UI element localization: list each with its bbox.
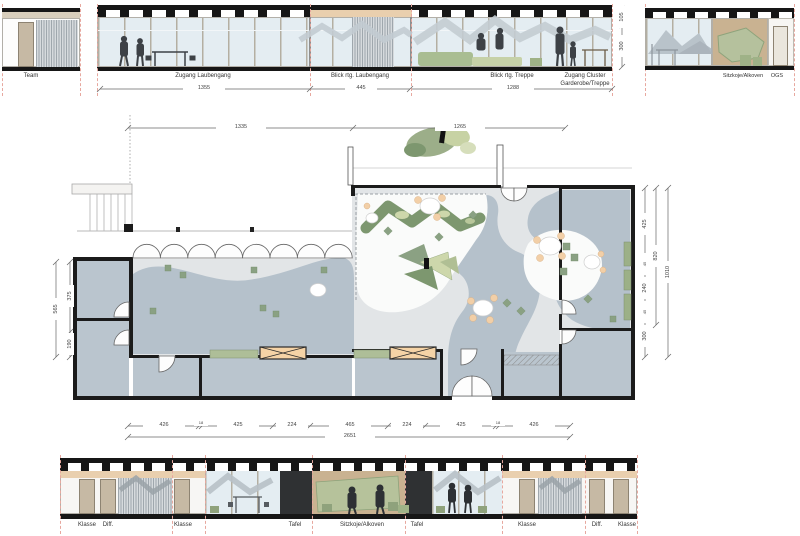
garderobe-benches	[210, 242, 631, 359]
dim-seg-426b: 426	[513, 422, 555, 429]
dim-seg-426a: 426	[143, 422, 185, 429]
dim-total-2651: 2651	[325, 433, 375, 440]
architectural-sheet: Team Zugang Laubengang Blick rtg. Lauben…	[0, 0, 800, 536]
section-label-ogs: OGS	[762, 73, 792, 80]
main-elevation-floor	[97, 67, 612, 71]
vdim-105: 105	[618, 6, 626, 28]
dim-375: 375	[66, 285, 74, 307]
bottom-label-diff-1: Diff.	[93, 522, 123, 529]
dim-1265: 1265	[435, 124, 485, 131]
dim-565: 565	[52, 298, 60, 320]
section-cut-line	[80, 4, 81, 96]
section-cut-line	[502, 455, 503, 534]
dim-820: 820	[652, 245, 660, 267]
diff-door	[100, 479, 116, 514]
green-triangle-cluster	[398, 244, 459, 290]
walls	[73, 185, 635, 400]
laubengang-post	[250, 227, 254, 232]
laubengang-ceiling	[310, 10, 412, 17]
section-label-zugang-laubengang: Zugang Laubengang	[153, 73, 253, 80]
bottom-glass-left	[205, 471, 280, 514]
bottom-label-sitzkoje: Sitzkoje/Alkoven	[322, 522, 402, 529]
section-label-blick-laubengang: Blick rtg. Laubengang	[310, 73, 410, 80]
bottom-tan-band-right	[502, 471, 637, 478]
team-door	[18, 22, 34, 67]
classrooms	[77, 261, 631, 396]
wall-return-post	[497, 145, 503, 187]
bottom-glass-right	[432, 471, 502, 514]
tafel-wall-right	[405, 471, 432, 514]
right-elevation-floor	[645, 66, 794, 70]
interior-door-arcs	[114, 188, 576, 396]
klasse-door	[613, 479, 629, 514]
bottom-section-rafters	[60, 463, 637, 471]
klasse-door	[174, 479, 190, 514]
dim-45b: 45	[641, 301, 649, 323]
bottom-curtain-right	[538, 478, 582, 514]
bottom-curtain-left	[118, 478, 172, 514]
section-cut-line	[97, 4, 98, 96]
klasse-door	[79, 479, 95, 514]
section-label-zugang-cluster-1: Zugang Cluster	[535, 73, 635, 80]
plan-dims	[53, 125, 671, 440]
dim-45a: 45	[641, 253, 649, 275]
dim-seg-465: 465	[329, 422, 371, 429]
main-curtain	[352, 17, 394, 67]
laubengang-post	[176, 227, 180, 232]
bottom-section-floor	[60, 514, 637, 519]
tafel-wall-left	[280, 471, 312, 514]
ogs-door	[773, 26, 788, 66]
dim-190: 190	[66, 333, 74, 355]
dim-seg-224b: 224	[391, 422, 423, 429]
right-elevation-glazing	[645, 18, 712, 66]
bottom-tan-band-left	[60, 471, 205, 478]
wall-return-post	[348, 147, 353, 185]
dim-seg-425a: 425	[217, 422, 259, 429]
dim-seg-224a: 224	[276, 422, 308, 429]
dim-300r: 300	[641, 325, 649, 347]
team-floor	[2, 67, 80, 71]
corridor-floor	[131, 188, 632, 397]
bottom-label-tafel-1: Tafel	[275, 522, 315, 529]
diff-door	[589, 479, 605, 514]
team-curtain	[36, 20, 78, 67]
alkoven-white-zone	[356, 194, 602, 312]
learning-landscape	[133, 190, 630, 396]
bottom-label-tafel-2: Tafel	[397, 522, 437, 529]
facade-door-arcs	[133, 244, 352, 258]
dim-seg-425b: 425	[440, 422, 482, 429]
dim-445: 445	[345, 85, 377, 92]
team-label: Team	[6, 73, 56, 80]
bottom-label-klasse-3: Klasse	[507, 522, 547, 529]
dim-1355: 1355	[183, 85, 225, 92]
vdim-300: 300	[618, 35, 626, 57]
hatched-wall	[504, 355, 559, 365]
dim-seg-18b: 18	[491, 419, 505, 426]
dim-425r: 425	[641, 213, 649, 235]
dim-1335: 1335	[216, 124, 266, 131]
bottom-label-klasse-2: Klasse	[163, 522, 203, 529]
green-snake-sofa	[366, 206, 480, 228]
bottom-label-klasse-4: Klasse	[607, 522, 647, 529]
section-cut-line	[60, 455, 61, 534]
dim-1288: 1288	[492, 85, 534, 92]
klasse-door	[519, 479, 535, 514]
dim-1010: 1010	[664, 261, 672, 283]
table-groups	[310, 195, 606, 324]
section-cut-line	[411, 4, 412, 96]
drawing-linework	[0, 0, 800, 536]
seat-cushions	[150, 211, 616, 322]
section-cut-line	[310, 4, 311, 96]
section-cut-line	[794, 4, 795, 96]
section-label-zugang-cluster-2: Garderobe/Treppe	[535, 81, 635, 88]
dim-240: 240	[641, 277, 649, 299]
pergola-stair	[72, 115, 132, 231]
sitzkoje-alcove	[312, 471, 405, 514]
alkoven-wood-panel	[712, 18, 768, 66]
dim-seg-18a: 18	[194, 419, 208, 426]
section-cut-line	[205, 455, 206, 534]
